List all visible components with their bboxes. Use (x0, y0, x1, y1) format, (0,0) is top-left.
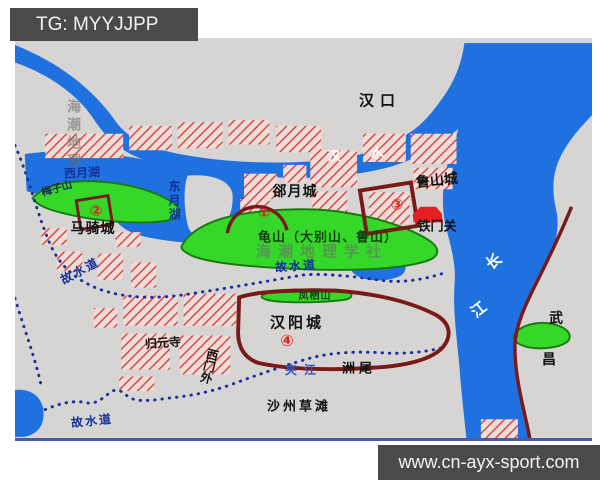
urban-block (94, 308, 117, 327)
urban-block (119, 376, 154, 391)
urban-block (129, 126, 172, 150)
label-hanyangcheng: 汉阳城 (270, 316, 324, 331)
website-watermark-banner: www.cn-ayx-sport.com (378, 445, 600, 480)
label-wuchang-char2: 昌 (542, 353, 556, 367)
urban-block (123, 296, 178, 326)
label-maqicheng: 马骑城 (71, 222, 116, 236)
label-lushancheng: 鲁山城 (415, 172, 458, 190)
marker-1: ① (258, 207, 270, 221)
telegram-watermark-banner: TG: MYYJJPP (10, 8, 198, 41)
label-zhouwei: 洲尾 (342, 363, 376, 376)
urban-block (411, 134, 457, 164)
marker-3: ③ (391, 198, 404, 213)
southwest-pond-shape (15, 390, 44, 437)
urban-block (228, 120, 269, 144)
label-wuchang-char1: 武 (549, 312, 563, 326)
screenshot-root: 汉口 汉 水 西月湖 东月湖 梅子山 ② 马骑城 郤月城 ① 鲁山城 ③ 铁门关… (0, 0, 600, 480)
urban-block (184, 294, 237, 326)
historical-map: 汉口 汉 水 西月湖 东月湖 梅子山 ② 马骑城 郤月城 ① 鲁山城 ③ 铁门关… (15, 38, 592, 441)
label-gushuidao-center: 故水道 (275, 259, 318, 274)
urban-block (178, 122, 223, 148)
urban-block (481, 419, 518, 438)
urban-block (131, 262, 156, 287)
watermark-vertical: 海潮地理 (66, 99, 80, 171)
urban-block (45, 134, 123, 158)
urban-block (283, 165, 306, 183)
label-tiemenguan: 铁门关 (417, 221, 456, 234)
marker-4: ④ (280, 333, 294, 349)
label-dongyue-lake: 东月湖 (168, 180, 180, 222)
urban-block (276, 126, 321, 152)
urban-block (41, 228, 66, 245)
label-hankou: 汉口 (359, 94, 401, 109)
label-queyuecheng: 郤月城 (273, 185, 318, 199)
old-waterway-line-west (15, 298, 41, 386)
label-jiajiang: 夹江 (285, 364, 323, 376)
marker-2: ② (90, 204, 103, 219)
label-shazhoucaotan: 沙州草滩 (267, 401, 331, 414)
label-guiyuansi: 归元寺 (145, 336, 182, 350)
watermark-horizontal: 海潮地理学社 (256, 245, 388, 260)
label-fengqishan: 凤栖山 (299, 292, 332, 302)
urban-block (115, 232, 140, 247)
